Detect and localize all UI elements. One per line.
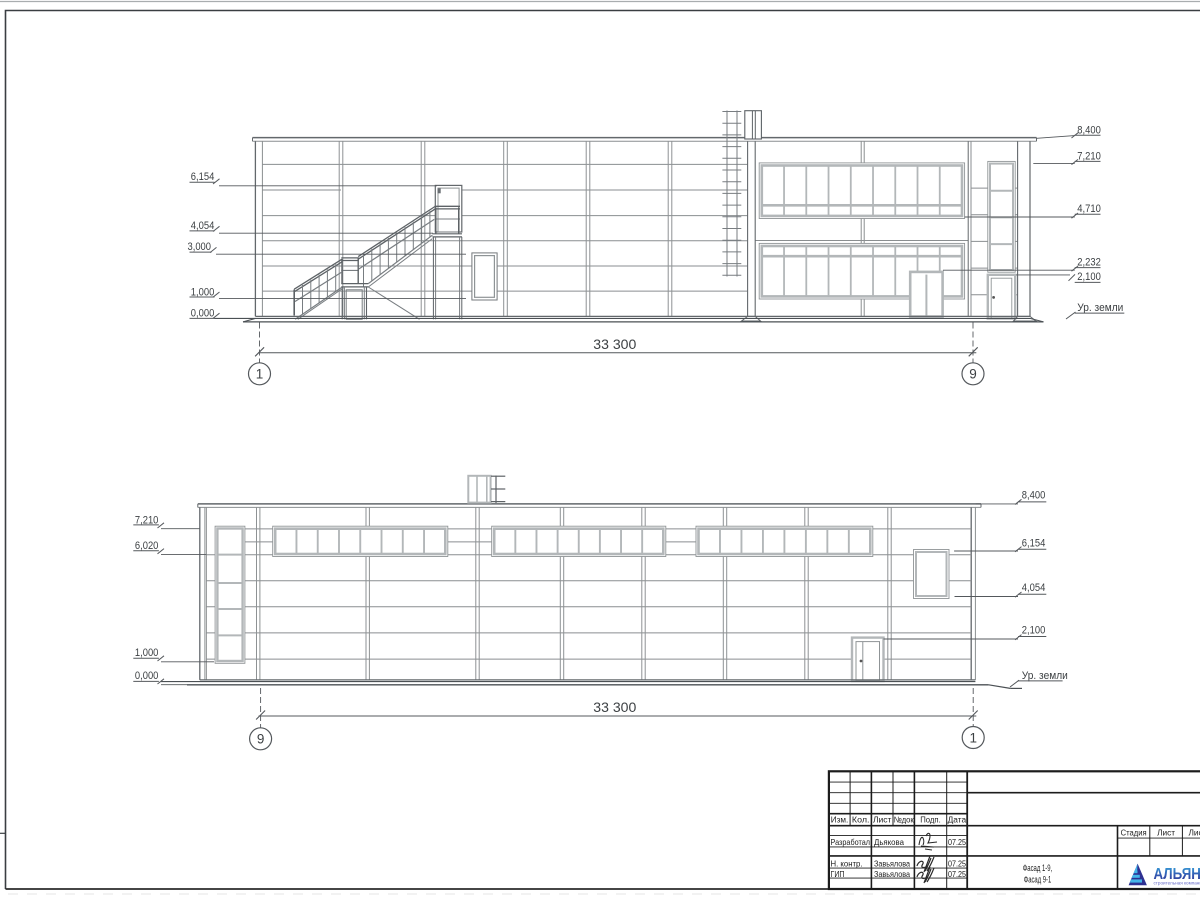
svg-text:Н. контр.: Н. контр. xyxy=(831,858,863,868)
svg-text:№док: №док xyxy=(894,815,914,825)
svg-text:6,154: 6,154 xyxy=(1022,537,1046,549)
svg-text:07.25: 07.25 xyxy=(948,869,966,879)
svg-text:Стадия: Стадия xyxy=(1121,827,1147,837)
svg-text:Ур. земли: Ур. земли xyxy=(1022,670,1068,682)
svg-text:2,232: 2,232 xyxy=(1077,257,1101,269)
svg-text:Фасад 1-9,: Фасад 1-9, xyxy=(1023,862,1053,873)
svg-text:4,710: 4,710 xyxy=(1077,203,1101,215)
svg-text:Дьякова: Дьякова xyxy=(874,837,904,847)
svg-text:6,154: 6,154 xyxy=(191,171,215,183)
svg-text:1,000: 1,000 xyxy=(135,647,159,659)
svg-text:8,400: 8,400 xyxy=(1022,490,1046,502)
svg-text:Лист: Лист xyxy=(873,815,892,825)
svg-text:3,000: 3,000 xyxy=(188,241,212,253)
svg-text:0,000: 0,000 xyxy=(191,307,215,319)
svg-text:Завьялова: Завьялова xyxy=(874,858,910,868)
svg-text:Ур. земли: Ур. земли xyxy=(1077,302,1123,314)
svg-text:Разработал: Разработал xyxy=(831,837,871,847)
svg-text:9: 9 xyxy=(969,367,977,382)
svg-text:1: 1 xyxy=(256,367,264,382)
svg-text:1: 1 xyxy=(969,730,977,745)
svg-text:Изм.: Изм. xyxy=(831,815,849,825)
svg-text:Лист: Лист xyxy=(1157,827,1175,837)
svg-text:Дата: Дата xyxy=(948,815,967,825)
svg-text:07.25: 07.25 xyxy=(948,858,966,868)
svg-text:7,210: 7,210 xyxy=(1077,150,1101,162)
svg-text:Завьялова: Завьялова xyxy=(874,869,910,879)
svg-text:07.25: 07.25 xyxy=(948,837,966,847)
svg-text:строительная компания: строительная компания xyxy=(1154,880,1200,885)
svg-text:9: 9 xyxy=(257,732,265,747)
svg-text:8,400: 8,400 xyxy=(1077,124,1101,136)
svg-text:Лист: Лист xyxy=(1189,827,1200,837)
svg-text:4,054: 4,054 xyxy=(191,220,215,232)
svg-text:6,020: 6,020 xyxy=(135,540,159,552)
svg-text:33 300: 33 300 xyxy=(593,337,636,352)
svg-text:2,100: 2,100 xyxy=(1022,625,1046,637)
svg-text:ГИП: ГИП xyxy=(831,869,845,879)
svg-text:Фасад 9-1: Фасад 9-1 xyxy=(1024,874,1052,885)
svg-text:Кол.: Кол. xyxy=(852,815,870,825)
svg-text:0,000: 0,000 xyxy=(135,670,159,682)
svg-text:Подп.: Подп. xyxy=(920,815,941,825)
svg-text:2,100: 2,100 xyxy=(1077,271,1101,283)
svg-text:4,054: 4,054 xyxy=(1022,582,1046,594)
svg-text:33 300: 33 300 xyxy=(593,700,636,715)
